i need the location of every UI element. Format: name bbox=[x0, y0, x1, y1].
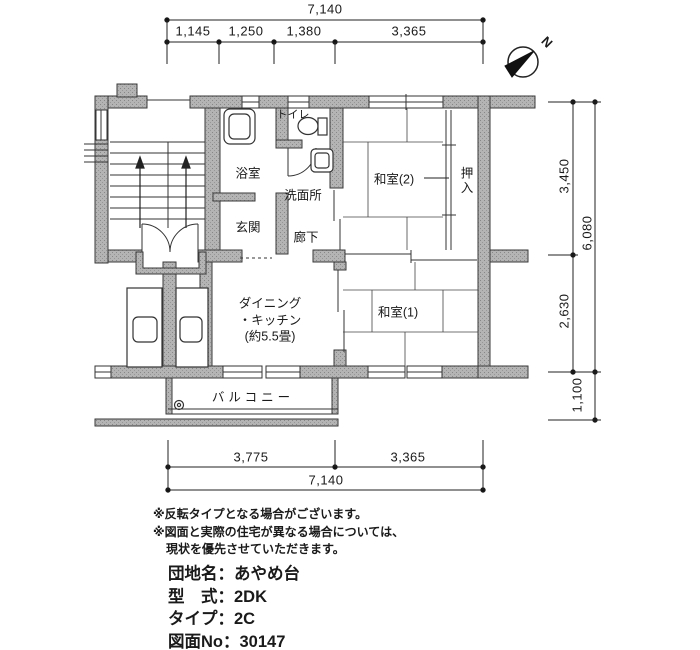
room-label-washitsu1: 和室(1) bbox=[378, 302, 418, 321]
dim-right-balcony: 1,100 bbox=[570, 377, 585, 412]
info-row-danchi: 団地名：あやめ台 bbox=[168, 563, 300, 586]
info-row-drawing-no: 図面No：30147 bbox=[168, 631, 300, 650]
room-label-dining-kitchen: ダイニング ・キッチン (約5.5畳) bbox=[239, 295, 302, 345]
info-separator: ： bbox=[218, 565, 235, 583]
room-label-toilet: トイレ bbox=[277, 106, 310, 122]
dim-bottom-seg-1: 3,775 bbox=[233, 450, 268, 465]
dim-bottom-seg-2: 3,365 bbox=[390, 450, 425, 465]
note-line-1: ※反転タイプとなる場合がございます。 bbox=[153, 506, 404, 524]
note-line-2: ※図面と実際の住宅が異なる場合については、 bbox=[153, 524, 404, 542]
room-label-washroom: 洗面所 bbox=[284, 185, 322, 204]
dk-line-1: ダイニング bbox=[239, 295, 302, 312]
info-separator: ： bbox=[218, 610, 235, 628]
dk-line-3: (約5.5畳) bbox=[239, 328, 302, 345]
dim-top-seg-4: 3,365 bbox=[391, 24, 426, 39]
dim-top-seg-1: 1,145 bbox=[175, 24, 210, 39]
room-label-entrance: 玄関 bbox=[235, 217, 260, 236]
stair-up-arrows bbox=[136, 157, 190, 228]
room-label-hall: 廊下 bbox=[293, 227, 318, 246]
dim-top-seg-3: 1,380 bbox=[286, 24, 321, 39]
info-value: 2C bbox=[234, 610, 255, 628]
dim-top-seg-2: 1,250 bbox=[228, 24, 263, 39]
dim-right-seg-1: 3,450 bbox=[557, 158, 572, 193]
dim-right-total: 6,080 bbox=[580, 215, 595, 250]
info-value: あやめ台 bbox=[234, 565, 300, 583]
room-label-bath: 浴室 bbox=[235, 163, 260, 182]
info-separator: ： bbox=[218, 588, 235, 606]
info-row-layout-type: 型 式：2DK bbox=[168, 586, 300, 609]
walls bbox=[95, 84, 535, 426]
info-value: 30147 bbox=[240, 633, 286, 650]
notes-block: ※反転タイプとなる場合がございます。 ※図面と実際の住宅が異なる場合については、… bbox=[153, 506, 404, 559]
room-label-balcony: バルコニー bbox=[212, 387, 294, 406]
info-value: 2DK bbox=[234, 588, 267, 606]
note-line-3: 現状を優先させていただきます。 bbox=[153, 541, 404, 559]
info-label: 図面No bbox=[168, 633, 223, 650]
info-separator: ： bbox=[223, 633, 240, 650]
dim-right-seg-2: 2,630 bbox=[557, 293, 572, 328]
info-row-type: タイプ：2C bbox=[168, 608, 300, 631]
tatami-lines bbox=[343, 108, 478, 366]
north-compass bbox=[505, 47, 538, 77]
balcony-edge bbox=[168, 409, 338, 414]
info-label: タイプ bbox=[168, 610, 218, 628]
info-label: 団地名 bbox=[168, 565, 218, 583]
dk-line-2: ・キッチン bbox=[239, 312, 302, 329]
floor-plan-page: N 7,140 1,145 1,250 1,380 3,365 3,450 6,… bbox=[0, 0, 700, 650]
room-label-closet: 押入 bbox=[457, 167, 476, 196]
dim-bottom-total: 7,140 bbox=[308, 473, 343, 488]
dim-top-total: 7,140 bbox=[307, 2, 342, 17]
info-label: 型 式 bbox=[168, 588, 218, 606]
info-block: 団地名：あやめ台 型 式：2DK タイプ：2C 図面No：30147 bbox=[168, 563, 300, 650]
toilet-tank bbox=[318, 118, 327, 135]
room-label-washitsu2: 和室(2) bbox=[374, 169, 414, 188]
